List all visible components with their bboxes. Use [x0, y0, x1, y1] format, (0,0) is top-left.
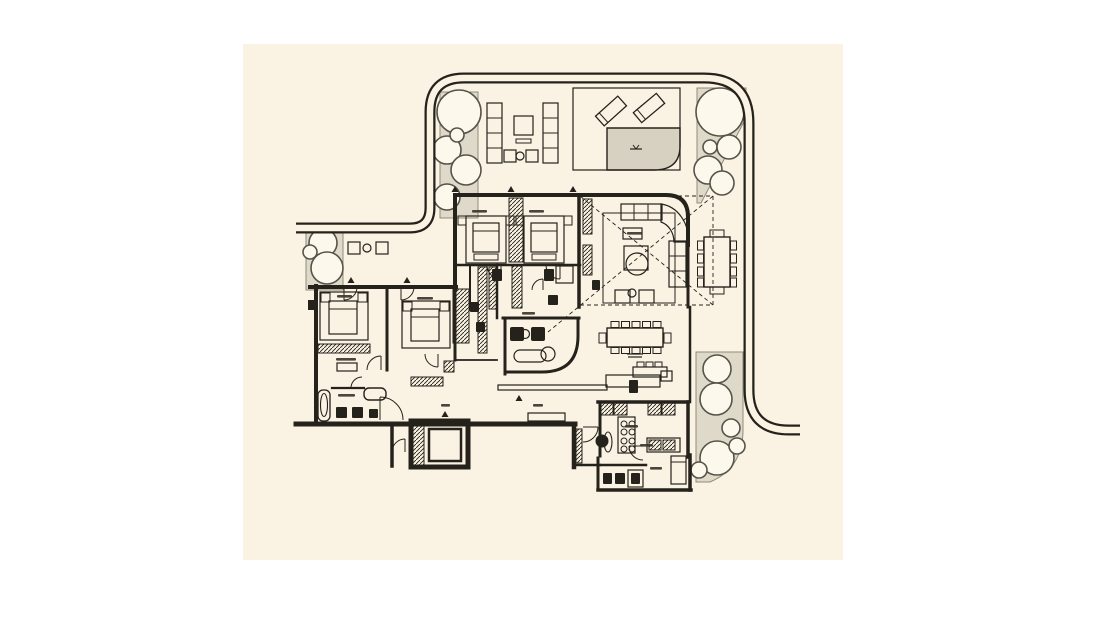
pool-lounge-chair	[596, 96, 627, 126]
bath-fixture	[476, 322, 485, 332]
label-smudge	[336, 358, 356, 361]
hall-buffet	[498, 385, 607, 390]
burner	[629, 429, 635, 435]
west-terrace-chair-a	[348, 242, 360, 254]
door-marker	[404, 277, 411, 283]
west-terrace-table	[363, 244, 371, 252]
tree	[691, 462, 707, 478]
bed-4-mattress	[411, 309, 439, 341]
label-smudge	[529, 210, 544, 213]
entry-console	[528, 413, 565, 421]
living-sofa-right	[669, 241, 686, 287]
bed-3-mattress	[329, 301, 357, 334]
burner	[621, 446, 627, 452]
living-chair-b	[639, 290, 654, 303]
dresser-bed-3	[337, 363, 357, 371]
wall	[506, 318, 578, 372]
dining-chair	[643, 322, 651, 328]
closet-hatch	[576, 429, 582, 463]
closet-hatch	[600, 403, 613, 415]
bed-b-bench	[532, 254, 556, 260]
closet-hatch	[411, 377, 443, 386]
pool-lounge-chair	[633, 93, 664, 122]
island-stool	[655, 362, 662, 367]
closet-hatch	[509, 198, 523, 262]
burner	[621, 429, 627, 435]
bath-fixture	[352, 407, 363, 418]
island-sink	[629, 380, 638, 393]
tree	[450, 128, 464, 142]
dining-chair	[611, 348, 619, 354]
tree	[729, 438, 745, 454]
terrace-table-small	[516, 152, 524, 160]
closet-hatch	[583, 245, 592, 275]
pool	[607, 128, 680, 170]
island-stool	[646, 362, 653, 367]
label-smudge	[533, 404, 543, 407]
shower-bed-b	[556, 266, 573, 283]
closet-hatch	[412, 424, 424, 466]
bath-fixture	[544, 269, 554, 281]
outdoor-side-chair	[731, 241, 737, 250]
living-small-table	[628, 289, 636, 297]
closet-hatch	[318, 344, 370, 353]
label-smudge	[627, 232, 642, 235]
door-arc	[367, 356, 381, 370]
floor-plan-canvas	[243, 44, 843, 560]
dining-chair	[632, 348, 640, 354]
bed-b-nightstand-r	[564, 216, 572, 225]
bath-fixture	[369, 409, 378, 418]
outdoor-side-chair	[698, 278, 704, 287]
service-fixture	[603, 473, 612, 484]
door-marker	[442, 411, 449, 417]
dining-chair	[643, 348, 651, 354]
service-fixture	[615, 473, 625, 484]
label-smudge	[417, 297, 433, 300]
closet-hatch	[648, 403, 661, 415]
label-smudge	[625, 425, 638, 428]
bed-b-mattress	[531, 223, 557, 252]
closet-hatch	[512, 266, 522, 308]
dining-head-chair	[599, 333, 606, 343]
door-marker	[508, 186, 515, 192]
bath-fixture	[592, 280, 600, 290]
outdoor-dining-table	[704, 237, 730, 287]
terrace-coffee-table	[514, 116, 533, 135]
closet-hatch	[444, 361, 454, 372]
label-smudge	[337, 295, 352, 298]
maid-bed	[671, 456, 686, 484]
bed-a-bench	[474, 254, 498, 260]
page-background	[0, 0, 1100, 630]
living-sofa-top	[621, 204, 662, 220]
floor-plan-svg	[243, 44, 1100, 630]
bathtub-basin	[321, 394, 328, 417]
dining-head-chair	[664, 333, 671, 343]
dining-chair	[653, 322, 661, 328]
tree	[303, 245, 317, 259]
closet-hatch	[478, 267, 487, 353]
label-smudge	[441, 404, 450, 407]
dining-chair	[611, 322, 619, 328]
closet-hatch	[583, 199, 592, 234]
tree	[710, 171, 734, 195]
door-arc	[351, 377, 362, 388]
door-marker	[348, 277, 355, 283]
bath-fixture	[336, 407, 347, 418]
tree	[717, 135, 741, 159]
label-smudge	[522, 312, 535, 315]
entry-plant	[596, 435, 608, 447]
label-smudge	[650, 467, 662, 470]
terrace-chair-a	[504, 150, 516, 162]
island-stool	[637, 362, 644, 367]
tree	[703, 140, 717, 154]
outdoor-head-chair	[710, 287, 724, 294]
terrace-chair-b	[526, 150, 538, 162]
outdoor-side-chair	[698, 241, 704, 250]
terrace-bench	[516, 139, 531, 143]
burner	[621, 438, 627, 444]
family-armchair	[531, 327, 545, 341]
tree	[700, 383, 732, 415]
tree	[722, 419, 740, 437]
closet-hatch	[614, 403, 627, 415]
wc-enclosure	[364, 388, 386, 400]
bed-3-nightstand-r	[358, 293, 367, 302]
label-smudge	[338, 394, 355, 397]
family-ottoman	[541, 347, 555, 361]
door-arc	[425, 354, 438, 367]
label-smudge	[472, 210, 487, 213]
closet-hatch	[453, 289, 469, 343]
outdoor-side-chair	[731, 267, 737, 276]
closet-hatch	[663, 440, 675, 450]
bath-fixture	[548, 295, 558, 305]
outdoor-head-chair	[710, 230, 724, 237]
outdoor-side-chair	[698, 254, 704, 263]
family-armchair	[510, 327, 524, 341]
door-marker	[516, 395, 523, 401]
door-arc	[380, 397, 403, 420]
tree	[703, 355, 731, 383]
dining-chair	[622, 322, 630, 328]
west-terrace-chair-b	[376, 242, 388, 254]
door-arc	[532, 279, 543, 290]
outdoor-side-chair	[698, 267, 704, 276]
dining-chair	[653, 348, 661, 354]
tree	[451, 155, 481, 185]
dining-chair	[622, 348, 630, 354]
closet-hatch	[662, 403, 675, 415]
door-arc	[392, 439, 405, 452]
window-jamb	[308, 300, 317, 310]
outdoor-side-chair	[731, 254, 737, 263]
bath-fixture	[470, 302, 479, 312]
service-fixture	[631, 473, 640, 484]
elevator-core	[429, 429, 461, 461]
outdoor-side-chair	[731, 278, 737, 287]
living-coffee-table	[626, 253, 648, 275]
label-smudge	[640, 444, 653, 447]
door-arc	[629, 446, 643, 460]
dining-chair	[632, 322, 640, 328]
burner	[629, 438, 635, 444]
bed-a-mattress	[473, 223, 499, 252]
bed-4-nightstand-r	[440, 302, 449, 311]
dining-table	[607, 328, 663, 347]
door-marker	[570, 186, 577, 192]
tree	[437, 90, 481, 134]
